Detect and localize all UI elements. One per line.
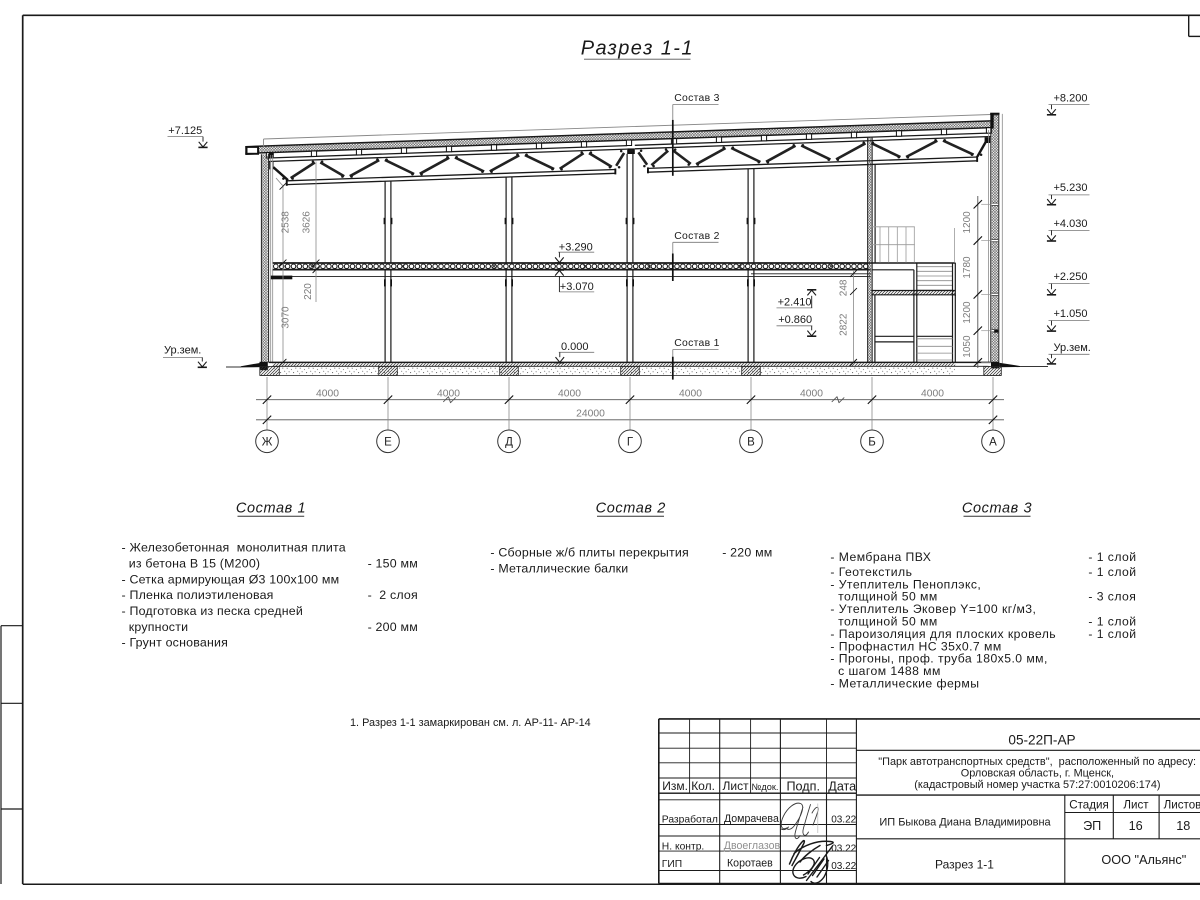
svg-text:Состав 3: Состав 3 [674, 93, 720, 104]
svg-text:Коротаев: Коротаев [727, 857, 773, 869]
svg-text:+5.230: +5.230 [1054, 182, 1088, 194]
svg-text:Двоеглазов: Двоеглазов [724, 840, 781, 852]
svg-text:+1.050: +1.050 [1054, 308, 1088, 320]
svg-text:- 3 слоя: - 3 слоя [1088, 590, 1136, 604]
svg-text:05-22П-АР: 05-22П-АР [1008, 733, 1075, 748]
svg-text:+2.410: +2.410 [778, 297, 812, 309]
svg-text:А: А [989, 436, 997, 448]
svg-text:+0.860: +0.860 [778, 314, 812, 326]
svg-text:Ж: Ж [262, 436, 273, 448]
svg-text:- 150 мм: - 150 мм [368, 557, 418, 571]
svg-text:ЭП: ЭП [1083, 819, 1101, 833]
svg-text:Состав 3: Состав 3 [962, 501, 1032, 517]
svg-text:- 1 слой: - 1 слой [1088, 550, 1136, 564]
svg-text:220: 220 [303, 283, 314, 300]
svg-text:03.22: 03.22 [831, 843, 856, 854]
svg-text:- Грунт основания: - Грунт основания [122, 636, 229, 650]
svg-text:248: 248 [838, 279, 849, 296]
svg-text:Разработал: Разработал [662, 813, 718, 825]
svg-text:Разрез 1-1: Разрез 1-1 [935, 858, 994, 872]
svg-text:Состав 1: Состав 1 [674, 338, 720, 349]
svg-text:- 200 мм: - 200 мм [368, 620, 418, 634]
svg-text:4000: 4000 [921, 388, 944, 399]
svg-text:- Сетка армирующая Ø3 100х100: - Сетка армирующая Ø3 100х100 мм [122, 572, 340, 586]
svg-text:4000: 4000 [558, 388, 581, 399]
svg-text:0.000: 0.000 [561, 341, 589, 353]
svg-text:Листов: Листов [1164, 798, 1200, 811]
svg-text:Ур.зем.: Ур.зем. [1054, 342, 1091, 354]
svg-text:Орловская область, г. Мценск,: Орловская область, г. Мценск, [961, 768, 1114, 780]
svg-text:- 1 слой: - 1 слой [1088, 627, 1136, 641]
svg-text:Кол.: Кол. [691, 779, 715, 793]
svg-text:18: 18 [1176, 819, 1190, 833]
svg-text:2822: 2822 [838, 313, 849, 336]
svg-text:3070: 3070 [281, 306, 292, 329]
svg-text:1780: 1780 [962, 256, 973, 279]
svg-text:1200: 1200 [962, 211, 973, 234]
svg-text:Стадия: Стадия [1069, 798, 1109, 811]
svg-text:03.22: 03.22 [831, 861, 856, 872]
svg-text:Лист: Лист [723, 779, 750, 793]
svg-text:- Пленка полиэтиленовая: - Пленка полиэтиленовая [122, 588, 274, 602]
svg-text:4000: 4000 [316, 388, 339, 399]
svg-text:4000: 4000 [679, 388, 702, 399]
svg-text:- 2 слоя: - 2 слоя [368, 588, 418, 602]
svg-text:Состав 1: Состав 1 [236, 501, 306, 517]
svg-text:Изм.: Изм. [662, 779, 688, 793]
svg-text:Е: Е [384, 436, 392, 448]
svg-text:ООО "Альянс": ООО "Альянс" [1101, 853, 1186, 867]
svg-text:- Сборные ж/б плиты перекрытия: - Сборные ж/б плиты перекрытия [490, 545, 689, 559]
svg-text:+2.250: +2.250 [1054, 271, 1088, 283]
svg-text:24000: 24000 [576, 408, 605, 419]
svg-text:крупности: крупности [122, 620, 189, 634]
svg-text:Домрачева: Домрачева [724, 813, 779, 825]
svg-text:ИП Быкова Диана Владимировна: ИП Быкова Диана Владимировна [879, 817, 1051, 829]
svg-text:16: 16 [1129, 819, 1143, 833]
svg-text:Д: Д [505, 436, 513, 448]
svg-text:Состав 2: Состав 2 [596, 501, 666, 517]
svg-text:4000: 4000 [800, 388, 823, 399]
svg-text:2538: 2538 [281, 211, 292, 234]
svg-text:№док.: №док. [752, 782, 779, 792]
svg-text:+4.030: +4.030 [1054, 218, 1088, 230]
svg-text:- Металлические балки: - Металлические балки [490, 561, 628, 575]
svg-text:(кадастровый номер участка 57:: (кадастровый номер участка 57:27:0010206… [914, 779, 1160, 791]
svg-text:ГИП: ГИП [662, 859, 682, 870]
svg-text:+3.290: +3.290 [559, 241, 593, 253]
svg-text:Разрез 1-1: Разрез 1-1 [581, 37, 694, 59]
svg-text:из бетона В 15 (М200): из бетона В 15 (М200) [122, 557, 261, 571]
svg-text:1. Разрез 1-1 замаркирован см.: 1. Разрез 1-1 замаркирован см. л. АР-11-… [350, 717, 591, 729]
svg-text:Состав 2: Состав 2 [674, 231, 720, 242]
svg-text:В: В [747, 436, 755, 448]
svg-text:- Мембрана ПВХ: - Мембрана ПВХ [830, 550, 931, 564]
svg-text:- Подготовка из песка средней: - Подготовка из песка средней [122, 604, 303, 618]
svg-text:- Железобетонная монолитная п: - Железобетонная монолитная плита [122, 541, 346, 555]
svg-text:"Парк автотранспортных средств: "Парк автотранспортных средств", располо… [878, 756, 1196, 768]
svg-text:Ур.зем.: Ур.зем. [164, 345, 201, 357]
svg-text:- 220 мм: - 220 мм [722, 545, 772, 559]
svg-text:+3.070: +3.070 [560, 281, 594, 293]
svg-text:Н. контр.: Н. контр. [662, 841, 705, 852]
svg-text:3626: 3626 [301, 211, 312, 234]
svg-text:Дата: Дата [828, 780, 856, 794]
svg-text:Подп.: Подп. [787, 780, 820, 794]
svg-text:- 1 слой: - 1 слой [1088, 565, 1136, 579]
svg-text:4000: 4000 [437, 388, 460, 399]
svg-text:+7.125: +7.125 [168, 125, 202, 137]
svg-text:Б: Б [868, 436, 876, 448]
svg-text:1050: 1050 [962, 335, 973, 358]
svg-text:03.22: 03.22 [831, 814, 856, 825]
svg-text:1200: 1200 [962, 301, 973, 324]
svg-text:+8.200: +8.200 [1054, 92, 1088, 104]
svg-text:Лист: Лист [1123, 798, 1149, 811]
svg-text:Г: Г [627, 436, 634, 448]
svg-text:- Металлические фермы: - Металлические фермы [830, 677, 979, 691]
